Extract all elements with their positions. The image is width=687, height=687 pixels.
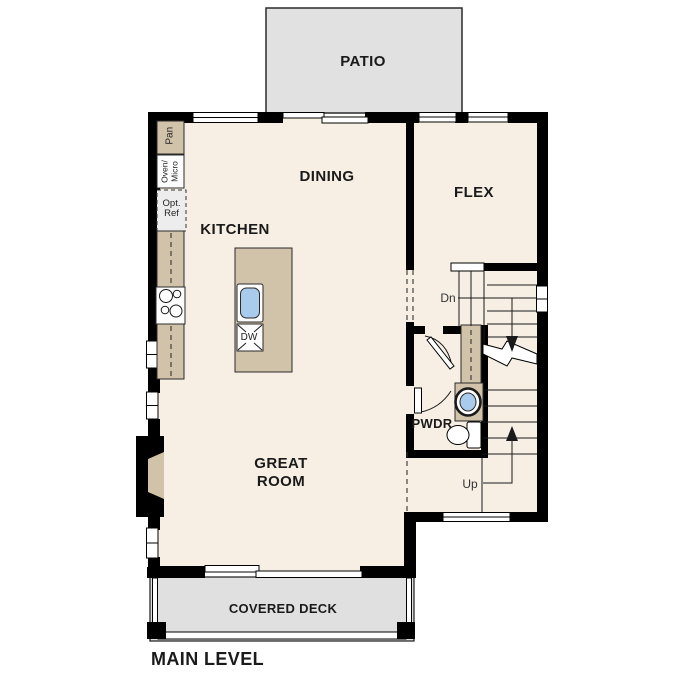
room-label-dining: DINING <box>277 168 377 185</box>
patio-slider-panel <box>322 117 368 123</box>
room-label-kitchen: KITCHEN <box>185 221 285 238</box>
deck-post <box>147 622 166 639</box>
room-label-patio: PATIO <box>313 53 413 70</box>
deck-post <box>397 622 415 639</box>
flex-wall <box>483 263 540 271</box>
patio-slider-panel <box>283 113 324 119</box>
room-label-covered-deck: COVERED DECK <box>183 601 383 616</box>
room-label-great-room: GREAT ROOM <box>231 455 331 491</box>
room-label-powder: PWDR <box>409 416 455 431</box>
fireplace-icon <box>136 436 164 517</box>
kitchen-counter <box>157 324 184 379</box>
deck-slider-panel <box>256 571 362 578</box>
dining-flex-wall <box>406 117 414 270</box>
stair-railing <box>451 263 484 271</box>
deck-slider-panel <box>205 566 259 573</box>
opt-ref-label: Opt. Ref <box>151 199 192 219</box>
stair-label-up: Up <box>455 477 485 491</box>
plan-title: MAIN LEVEL <box>151 649 264 670</box>
stair-label-down: Dn <box>433 291 463 305</box>
floor-plan: PATIO DINING FLEX KITCHEN GREAT ROOM PWD… <box>0 0 687 687</box>
deck-rail-bottom <box>158 632 406 639</box>
dishwasher-label: DW <box>234 332 264 343</box>
pantry-label: Pan <box>165 116 175 156</box>
oven-micro-label: Oven/ Micro <box>161 152 180 192</box>
island-sink-basin <box>241 288 260 318</box>
floor-plan-drawing <box>0 0 687 687</box>
room-label-flex: FLEX <box>424 184 524 201</box>
